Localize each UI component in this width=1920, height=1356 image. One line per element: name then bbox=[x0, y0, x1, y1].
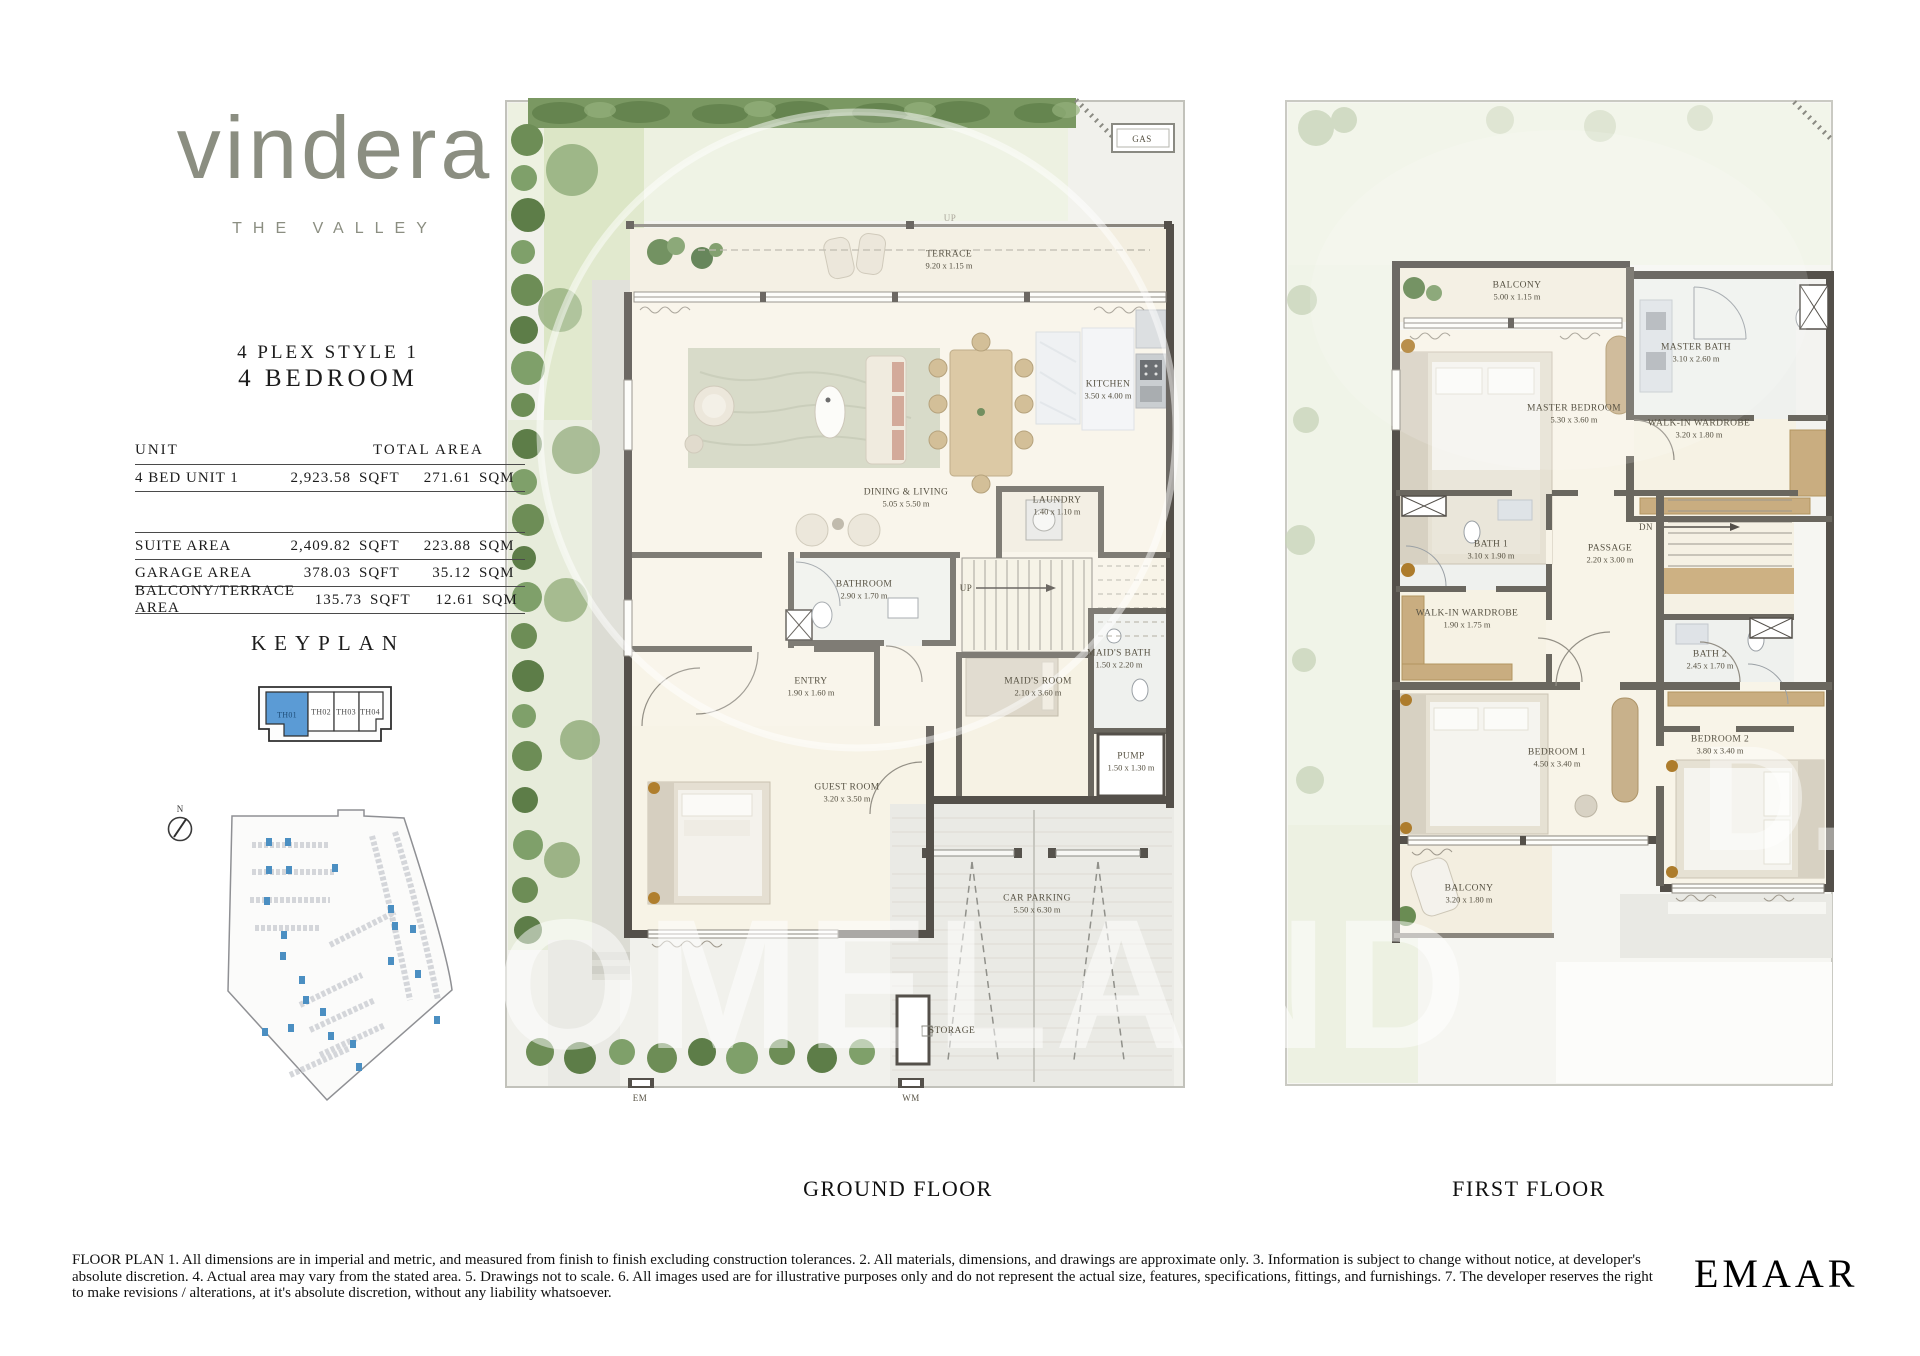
unit-row-sqft-unit: SQFT bbox=[351, 470, 411, 487]
garage-area-sqm: 35.12 bbox=[411, 565, 471, 582]
room-label-bedroom-2: BEDROOM 23.80 x 3.40 m bbox=[1691, 733, 1749, 756]
room-label-dining-living: DINING & LIVING5.05 x 5.50 m bbox=[864, 486, 949, 509]
area-table-header: UNIT TOTAL AREA bbox=[135, 436, 525, 465]
room-label-car-parking: CAR PARKING5.50 x 6.30 m bbox=[1003, 892, 1071, 915]
table-spacer bbox=[135, 492, 525, 533]
suite-area-sqft: 2,409.82 bbox=[279, 538, 351, 555]
unit-row-sqm: 271.61 bbox=[411, 470, 471, 487]
room-label-walkin-wardrobe-master: WALK-IN WARDROBE3.20 x 1.80 m bbox=[1648, 417, 1751, 440]
unit-row-sqft: 2,923.58 bbox=[279, 470, 351, 487]
plan-style-title: 4 PLEX STYLE 1 bbox=[133, 342, 523, 364]
room-label-balcony-top: BALCONY5.00 x 1.15 m bbox=[1493, 279, 1542, 302]
keyplan-unit-th04: TH04 bbox=[360, 708, 380, 717]
table-row: 4 BED UNIT 1 2,923.58 SQFT 271.61 SQM bbox=[135, 465, 525, 492]
unit-row-label: 4 BED UNIT 1 bbox=[135, 470, 279, 487]
room-label-bedroom-1: BEDROOM 14.50 x 3.40 m bbox=[1528, 746, 1586, 769]
room-label-master-bath: MASTER BATH3.10 x 2.60 m bbox=[1661, 341, 1731, 364]
em-label: EM bbox=[633, 1093, 648, 1103]
balcony-area-sqm-unit: SQM bbox=[474, 592, 525, 609]
suite-area-sqm: 223.88 bbox=[411, 538, 471, 555]
keyplan-unit-th01: TH01 bbox=[277, 711, 297, 720]
room-label-bath-2: BATH 22.45 x 1.70 m bbox=[1687, 648, 1734, 671]
garage-area-sqft: 378.03 bbox=[279, 565, 351, 582]
room-label-walkin-wardrobe-small: WALK-IN WARDROBE1.90 x 1.75 m bbox=[1416, 607, 1519, 630]
balcony-area-sqm: 12.61 bbox=[418, 592, 474, 609]
keyplan-unit-th03: TH03 bbox=[336, 708, 356, 717]
first-floor-title: FIRST FLOOR bbox=[1429, 1176, 1629, 1202]
table-row: BALCONY/TERRACE AREA 135.73 SQFT 12.61 S… bbox=[135, 587, 525, 614]
ground-floor-title: GROUND FLOOR bbox=[798, 1176, 998, 1202]
room-label-bathroom: BATHROOM2.90 x 1.70 m bbox=[836, 578, 893, 601]
room-label-laundry: LAUNDRY1.40 x 1.10 m bbox=[1033, 494, 1082, 517]
up-terrace-label: UP bbox=[944, 213, 957, 223]
room-label-kitchen: KITCHEN3.50 x 4.00 m bbox=[1085, 378, 1132, 401]
room-label-master-bedroom: MASTER BEDROOM5.30 x 3.60 m bbox=[1527, 402, 1621, 425]
garage-area-sqm-unit: SQM bbox=[471, 565, 525, 582]
brochure-page: OMELAND D. vindera THE VALLEY 4 PLEX STY… bbox=[0, 0, 1920, 1356]
disclaimer-text: FLOOR PLAN 1. All dimensions are in impe… bbox=[72, 1252, 1664, 1302]
first-floor-drawing bbox=[1285, 101, 1834, 1085]
suite-area-sqft-unit: SQFT bbox=[351, 538, 411, 555]
unit-row-sqm-unit: SQM bbox=[471, 470, 525, 487]
room-label-pump: PUMP1.50 x 1.30 m bbox=[1108, 750, 1155, 773]
suite-area-label: SUITE AREA bbox=[135, 538, 279, 555]
garage-area-sqft-unit: SQFT bbox=[351, 565, 411, 582]
room-label-balcony-bottom: BALCONY3.20 x 1.80 m bbox=[1445, 882, 1494, 905]
room-label-bath-1: BATH 13.10 x 1.90 m bbox=[1468, 538, 1515, 561]
room-label-passage: PASSAGE2.20 x 3.00 m bbox=[1587, 542, 1634, 565]
area-table: UNIT TOTAL AREA 4 BED UNIT 1 2,923.58 SQ… bbox=[135, 436, 525, 614]
site-map bbox=[228, 810, 452, 1100]
total-area-column-header: TOTAL AREA bbox=[373, 442, 484, 459]
suite-area-sqm-unit: SQM bbox=[471, 538, 525, 555]
room-label-entry: ENTRY1.90 x 1.60 m bbox=[788, 675, 835, 698]
keyplan-title: KEYPLAN bbox=[133, 631, 523, 656]
unit-column-header: UNIT bbox=[135, 442, 179, 459]
wm-label: WM bbox=[902, 1093, 920, 1103]
plan-type-title: 4 BEDROOM bbox=[133, 365, 523, 393]
brand-logo: vindera bbox=[140, 104, 530, 192]
emaar-logo: EMAAR bbox=[1694, 1250, 1858, 1297]
compass-icon bbox=[169, 818, 192, 841]
balcony-area-sqft-unit: SQFT bbox=[362, 592, 418, 609]
room-label-guest-room: GUEST ROOM3.20 x 3.50 m bbox=[814, 781, 879, 804]
up-label: UP bbox=[960, 583, 973, 593]
room-label-terrace: TERRACE9.20 x 1.15 m bbox=[926, 248, 973, 271]
compass-north-label: N bbox=[177, 804, 184, 814]
floorplan-graphics bbox=[0, 0, 1920, 1356]
room-label-maids-room: MAID'S ROOM2.10 x 3.60 m bbox=[1004, 675, 1072, 698]
balcony-area-sqft: 135.73 bbox=[295, 592, 362, 609]
dn-label: DN bbox=[1639, 522, 1653, 532]
keyplan-unit-th02: TH02 bbox=[311, 708, 331, 717]
room-label-maids-bath: MAID'S BATH1.50 x 2.20 m bbox=[1087, 647, 1151, 670]
balcony-area-label: BALCONY/TERRACE AREA bbox=[135, 583, 295, 617]
gas-label: GAS bbox=[1132, 134, 1152, 144]
room-label-storage: STORAGE bbox=[929, 1025, 975, 1037]
table-row: SUITE AREA 2,409.82 SQFT 223.88 SQM bbox=[135, 533, 525, 560]
garage-area-label: GARAGE AREA bbox=[135, 565, 279, 582]
brand-tagline: THE VALLEY bbox=[140, 220, 530, 238]
